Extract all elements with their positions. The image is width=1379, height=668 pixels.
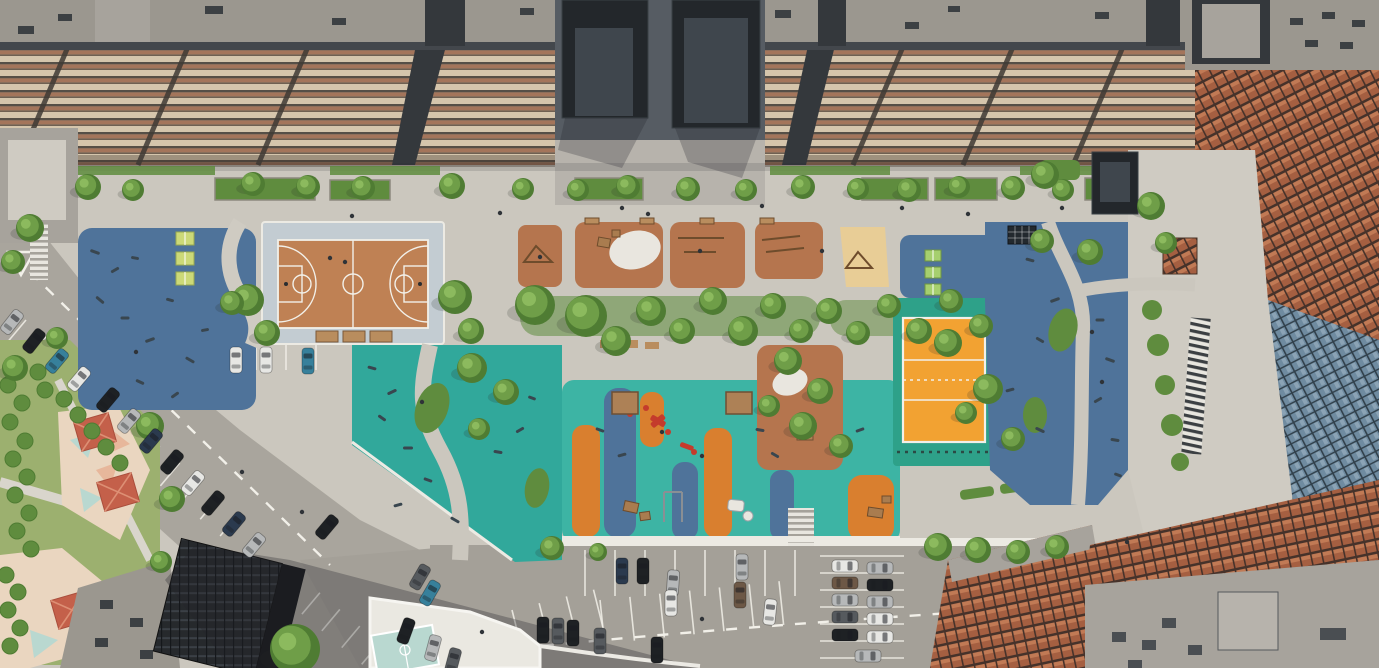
tree-highlight	[881, 298, 889, 306]
person	[1100, 380, 1104, 384]
tree-highlight	[444, 178, 453, 187]
tree-highlight	[522, 292, 536, 306]
tree-highlight	[779, 352, 789, 362]
hedge-bush	[17, 433, 33, 449]
hedge-bush	[5, 451, 21, 467]
tree-highlight	[245, 176, 253, 184]
person	[820, 249, 824, 253]
person	[498, 211, 502, 215]
hedge-bush	[37, 382, 53, 398]
parked-car	[537, 617, 549, 643]
tree-highlight	[821, 303, 830, 312]
tree-highlight	[1159, 236, 1167, 244]
hedge-bush	[2, 638, 18, 654]
person	[1090, 330, 1094, 334]
hedge-bush	[14, 395, 30, 411]
person	[300, 510, 304, 514]
tree-highlight	[544, 540, 552, 548]
tree-highlight	[259, 325, 268, 334]
hedge-bush	[0, 567, 14, 583]
tree-highlight	[943, 293, 951, 301]
tree-highlight	[850, 325, 858, 333]
person	[900, 206, 904, 210]
roof-gap	[425, 0, 465, 46]
basketball-court	[262, 222, 444, 344]
person	[1125, 540, 1129, 544]
person	[620, 206, 624, 210]
tree-highlight	[164, 491, 173, 500]
tower-roof-panel	[575, 28, 633, 116]
person	[760, 204, 764, 208]
fitness-equipment	[1096, 319, 1105, 322]
tree-highlight	[1034, 233, 1042, 241]
tree-highlight	[704, 292, 714, 302]
parked-car	[832, 611, 858, 623]
tree-highlight	[952, 180, 960, 188]
hedge-bush	[2, 414, 18, 430]
parked-car	[736, 554, 748, 580]
parked-car	[616, 558, 628, 584]
parked-car	[302, 348, 314, 374]
tree-highlight	[733, 321, 744, 332]
parked-car	[763, 598, 778, 625]
fitness-equipment	[403, 447, 413, 450]
parked-car	[867, 631, 893, 643]
curved-path	[1083, 284, 1195, 290]
fitness-equipment	[121, 317, 130, 320]
parked-car	[867, 579, 893, 591]
tree-highlight	[939, 334, 949, 344]
hedge-bush	[0, 602, 16, 618]
person	[343, 260, 347, 264]
roof-courtyard	[1218, 592, 1278, 650]
hedge-island	[1023, 397, 1047, 433]
tree-highlight	[279, 633, 297, 651]
tree-highlight	[1010, 544, 1018, 552]
tree-highlight	[674, 323, 683, 332]
person	[966, 212, 970, 216]
roof-inner	[1202, 4, 1260, 58]
table-tennis-tables-west	[176, 232, 194, 285]
tree-highlight	[50, 331, 58, 339]
tree-highlight	[970, 542, 979, 551]
tree-highlight	[1142, 197, 1152, 207]
aerial-courtyard-render	[0, 0, 1379, 668]
tree-highlight	[641, 301, 652, 312]
tree-highlight	[141, 417, 151, 427]
person	[646, 212, 650, 216]
person	[328, 256, 332, 260]
parked-car	[832, 594, 858, 606]
person	[420, 400, 424, 404]
scene-canvas	[0, 0, 1379, 668]
tree-highlight	[620, 179, 628, 187]
south-wall-edge	[562, 536, 900, 542]
tree-highlight	[224, 295, 232, 303]
parked-car	[594, 628, 606, 654]
table-tennis-tables-east	[925, 250, 941, 295]
person	[240, 470, 244, 474]
tree-highlight	[80, 179, 89, 188]
tree-highlight	[1005, 431, 1013, 439]
tree-highlight	[1005, 180, 1013, 188]
person	[134, 350, 138, 354]
parked-car	[867, 613, 893, 625]
playground-gymnastics	[670, 222, 745, 288]
parked-car	[665, 590, 677, 616]
tree-highlight	[1082, 244, 1091, 253]
parked-car	[867, 596, 893, 608]
tree-highlight	[571, 183, 579, 191]
roof-section	[95, 0, 150, 42]
parked-car	[260, 347, 272, 373]
hedge-bush	[9, 523, 25, 539]
tree-highlight	[901, 182, 909, 190]
tree-highlight	[762, 399, 770, 407]
parked-car	[832, 577, 858, 589]
person	[700, 617, 704, 621]
tree-highlight	[680, 181, 688, 189]
person	[350, 214, 354, 218]
hedge-bush	[70, 407, 86, 423]
tree-highlight	[154, 555, 162, 563]
tree-highlight	[959, 406, 967, 414]
tower-roof-panel	[684, 18, 748, 123]
sand-pit	[840, 227, 889, 287]
hedge-bush	[98, 439, 114, 455]
tree-highlight	[21, 219, 31, 229]
person	[700, 454, 704, 458]
hedge-bush	[10, 584, 26, 600]
parked-car	[855, 650, 881, 662]
parked-car	[230, 347, 242, 373]
hoop	[284, 282, 288, 286]
person	[1060, 206, 1064, 210]
person	[480, 630, 484, 634]
low-building-court	[8, 140, 66, 220]
tree-highlight	[978, 379, 989, 390]
parked-car	[567, 620, 579, 646]
tree-highlight	[5, 254, 13, 262]
tree-highlight	[929, 538, 939, 548]
hedge-bush	[21, 505, 37, 521]
tree-highlight	[794, 417, 804, 427]
tree-highlight	[973, 318, 981, 326]
roof-gap	[818, 0, 846, 46]
person	[660, 430, 664, 434]
tree-highlight	[126, 183, 134, 191]
parked-car	[637, 558, 649, 584]
tree-highlight	[606, 331, 617, 342]
tree-highlight	[1056, 183, 1064, 191]
parked-car	[734, 582, 746, 608]
hoop	[418, 282, 422, 286]
hedge-bush	[112, 455, 128, 471]
tree-highlight	[911, 323, 920, 332]
hedge-bush	[7, 487, 23, 503]
tree-highlight	[462, 358, 473, 369]
tree-highlight	[833, 438, 841, 446]
tree-highlight	[472, 422, 480, 430]
tree-highlight	[851, 182, 859, 190]
hedge-bush	[30, 364, 46, 380]
roof-gap	[1146, 0, 1180, 46]
person	[538, 255, 542, 259]
tree-highlight	[355, 180, 363, 188]
parked-car	[651, 637, 663, 663]
tree-highlight	[516, 182, 524, 190]
tree-highlight	[444, 286, 456, 298]
tree-highlight	[463, 323, 472, 332]
tree-highlight	[793, 323, 801, 331]
tree-highlight	[812, 383, 821, 392]
parked-car	[867, 562, 893, 574]
tree-highlight	[498, 384, 507, 393]
tree-highlight	[1036, 166, 1046, 176]
hedge-bush	[12, 620, 28, 636]
parked-car	[832, 629, 858, 641]
tree-highlight	[765, 298, 774, 307]
tree-highlight	[592, 546, 598, 552]
hedge-bush	[19, 469, 35, 485]
tree-highlight	[1049, 539, 1057, 547]
tree-highlight	[739, 183, 747, 191]
tree-highlight	[795, 179, 803, 187]
hedge-bush	[84, 423, 100, 439]
parked-car	[832, 560, 858, 572]
parked-car	[552, 618, 564, 644]
tree-highlight	[572, 302, 587, 317]
tree-highlight	[300, 179, 308, 187]
hedge-bush	[23, 541, 39, 557]
tree-highlight	[7, 360, 16, 369]
hedge-bush	[56, 391, 72, 407]
person	[698, 249, 702, 253]
bench-row	[316, 331, 392, 342]
